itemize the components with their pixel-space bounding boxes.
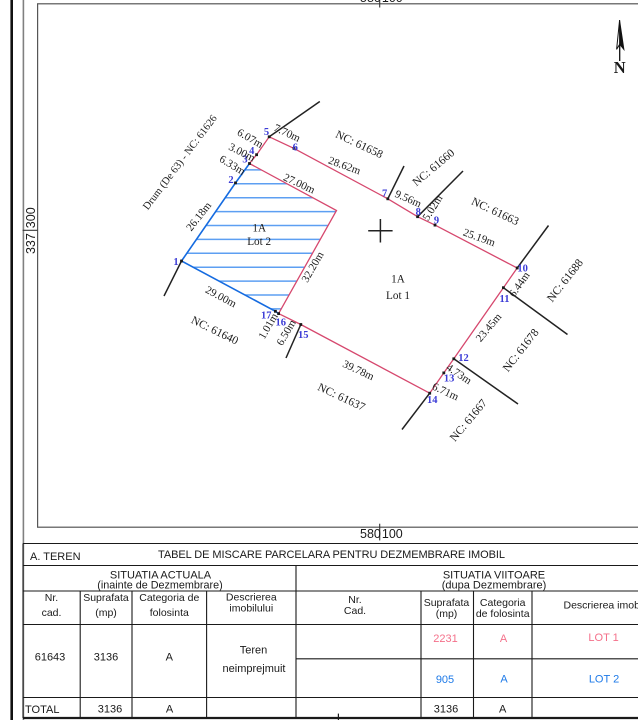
svg-text:A. TEREN: A. TEREN — [30, 551, 81, 563]
svg-text:2: 2 — [228, 175, 233, 186]
svg-text:580: 580 — [360, 0, 381, 5]
svg-text:A: A — [166, 652, 174, 664]
svg-text:LOT 1: LOT 1 — [588, 632, 618, 644]
svg-text:A: A — [500, 633, 508, 645]
svg-text:337: 337 — [24, 233, 38, 254]
svg-text:(mp): (mp) — [436, 608, 458, 620]
svg-text:A: A — [166, 704, 174, 716]
svg-text:imobilului: imobilului — [229, 603, 273, 615]
svg-text:2231: 2231 — [433, 633, 457, 645]
svg-text:A: A — [500, 674, 508, 686]
svg-text:Categoria de: Categoria de — [139, 592, 199, 604]
svg-text:100: 100 — [382, 527, 403, 541]
svg-text:11: 11 — [500, 294, 510, 305]
svg-text:Descrierea imob: Descrierea imob — [564, 600, 638, 612]
svg-text:14: 14 — [427, 395, 438, 406]
svg-text:Suprafata: Suprafata — [83, 592, 129, 604]
svg-text:5: 5 — [264, 127, 269, 138]
svg-text:cad.: cad. — [42, 607, 62, 619]
svg-text:folosinta: folosinta — [150, 607, 189, 619]
svg-text:3136: 3136 — [434, 704, 458, 716]
svg-text:Cad.: Cad. — [344, 605, 366, 617]
svg-text:7: 7 — [382, 189, 387, 200]
svg-text:3136: 3136 — [98, 704, 122, 716]
svg-text:Nr.: Nr. — [45, 592, 58, 604]
svg-text:1: 1 — [173, 257, 178, 268]
svg-text:61643: 61643 — [35, 652, 66, 664]
svg-text:905: 905 — [436, 674, 454, 686]
svg-text:(mp): (mp) — [95, 607, 117, 619]
svg-text:9: 9 — [434, 216, 439, 227]
svg-text:1A: 1A — [391, 273, 405, 285]
svg-text:15: 15 — [298, 330, 309, 341]
svg-text:1A: 1A — [252, 223, 266, 235]
svg-text:de folosinta: de folosinta — [476, 608, 530, 620]
svg-text:12: 12 — [458, 353, 469, 364]
svg-text:(inainte de Dezmembrare): (inainte de Dezmembrare) — [97, 580, 222, 592]
svg-text:N: N — [614, 58, 626, 77]
svg-text:3136: 3136 — [94, 652, 118, 664]
svg-text:(dupa Dezmembrare): (dupa Dezmembrare) — [442, 580, 547, 592]
svg-text:100: 100 — [382, 0, 403, 5]
svg-text:300: 300 — [24, 207, 38, 228]
svg-text:Lot 2: Lot 2 — [247, 236, 271, 248]
svg-text:TABEL DE MISCARE PARCELARA PEN: TABEL DE MISCARE PARCELARA PENTRU DEZMEM… — [158, 549, 505, 561]
svg-text:LOT 2: LOT 2 — [589, 674, 619, 686]
svg-text:neimprejmuit: neimprejmuit — [223, 663, 286, 675]
svg-text:580: 580 — [360, 527, 381, 541]
svg-text:TOTAL: TOTAL — [25, 704, 59, 716]
svg-text:Lot 1: Lot 1 — [386, 290, 410, 302]
svg-text:A: A — [499, 704, 507, 716]
svg-text:Teren: Teren — [240, 645, 268, 657]
